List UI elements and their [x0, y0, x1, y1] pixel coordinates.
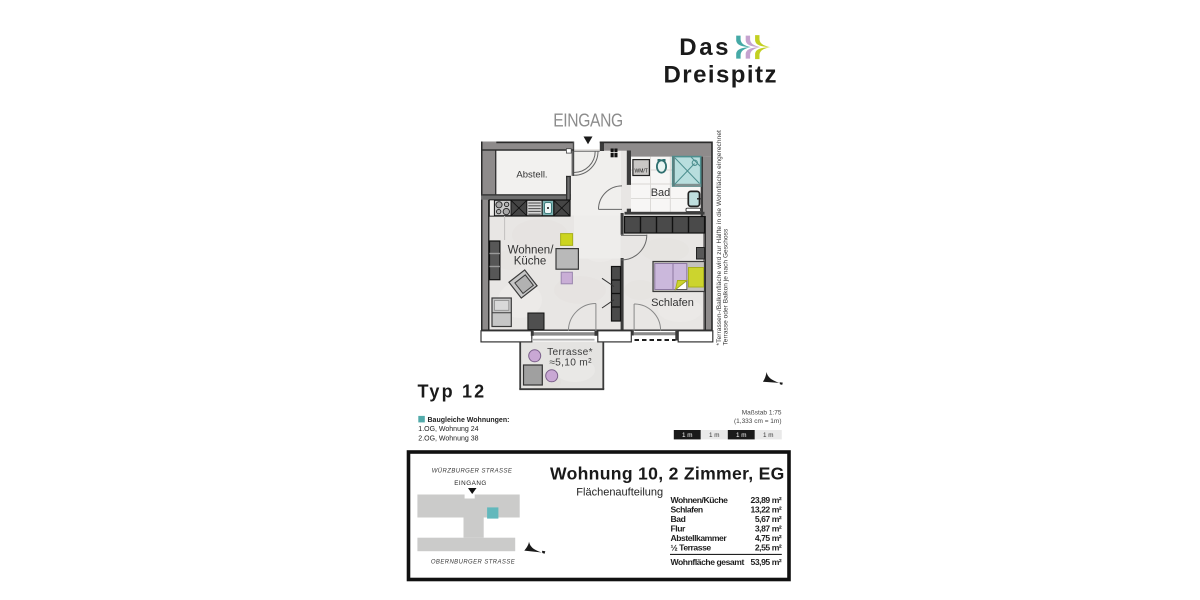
svg-text:13,22 m²: 13,22 m²	[751, 505, 782, 515]
svg-text:Wohnfläche gesamt: Wohnfläche gesamt	[671, 557, 745, 567]
svg-text:1 m: 1 m	[709, 432, 720, 439]
svg-text:½ Terrasse: ½ Terrasse	[671, 543, 712, 553]
svg-text:Terrasse*: Terrasse*	[547, 347, 593, 358]
svg-text:(1,333 cm = 1m): (1,333 cm = 1m)	[734, 418, 782, 425]
svg-text:2.OG, Wohnung 38: 2.OG, Wohnung 38	[418, 435, 478, 442]
svg-text:Terrasse oder Balkon je nach G: Terrasse oder Balkon je nach Geschoss	[722, 228, 729, 345]
svg-text:Maßstab 1:75: Maßstab 1:75	[742, 410, 782, 417]
svg-text:WM/T: WM/T	[635, 168, 648, 174]
svg-text:1 m: 1 m	[763, 432, 774, 439]
svg-text:Schlafen: Schlafen	[671, 505, 703, 515]
svg-text:Das: Das	[679, 34, 731, 61]
svg-text:Flächenaufteilung: Flächenaufteilung	[576, 486, 663, 498]
svg-text:1 m: 1 m	[682, 432, 693, 439]
svg-text:≈5,10 m²: ≈5,10 m²	[549, 358, 592, 369]
svg-text:EINGANG: EINGANG	[553, 110, 623, 131]
svg-text:1 m: 1 m	[736, 432, 747, 439]
svg-text:Wohnen/Küche: Wohnen/Küche	[671, 495, 729, 505]
svg-text:Schlafen: Schlafen	[651, 297, 694, 309]
svg-text:Baugleiche Wohnungen:: Baugleiche Wohnungen:	[428, 417, 510, 424]
svg-text:Küche: Küche	[514, 256, 547, 268]
svg-text:WÜRZBURGER STRASSE: WÜRZBURGER STRASSE	[432, 468, 513, 475]
svg-text:EINGANG: EINGANG	[454, 480, 487, 487]
svg-text:Typ 12: Typ 12	[418, 382, 487, 402]
svg-text:1.OG, Wohnung 24: 1.OG, Wohnung 24	[418, 426, 478, 433]
svg-text:53,95 m²: 53,95 m²	[751, 557, 782, 567]
svg-text:Dreispitz: Dreispitz	[664, 61, 778, 88]
svg-text:Flur: Flur	[671, 524, 687, 534]
svg-text:Abstell.: Abstell.	[516, 170, 547, 181]
svg-text:OBERNBURGER STRASSE: OBERNBURGER STRASSE	[431, 560, 516, 566]
svg-text:Wohnung 10, 2 Zimmer, EG: Wohnung 10, 2 Zimmer, EG	[550, 463, 785, 483]
svg-text:23,89 m²: 23,89 m²	[751, 495, 782, 505]
svg-text:Abstellkammer: Abstellkammer	[671, 533, 728, 543]
svg-text:4,75 m²: 4,75 m²	[755, 533, 782, 543]
svg-text:3,87 m²: 3,87 m²	[755, 524, 782, 534]
svg-text:2,55 m²: 2,55 m²	[755, 543, 782, 553]
svg-text:Bad: Bad	[651, 187, 671, 199]
svg-text:Bad: Bad	[671, 514, 686, 524]
svg-text:5,67 m²: 5,67 m²	[755, 514, 782, 524]
